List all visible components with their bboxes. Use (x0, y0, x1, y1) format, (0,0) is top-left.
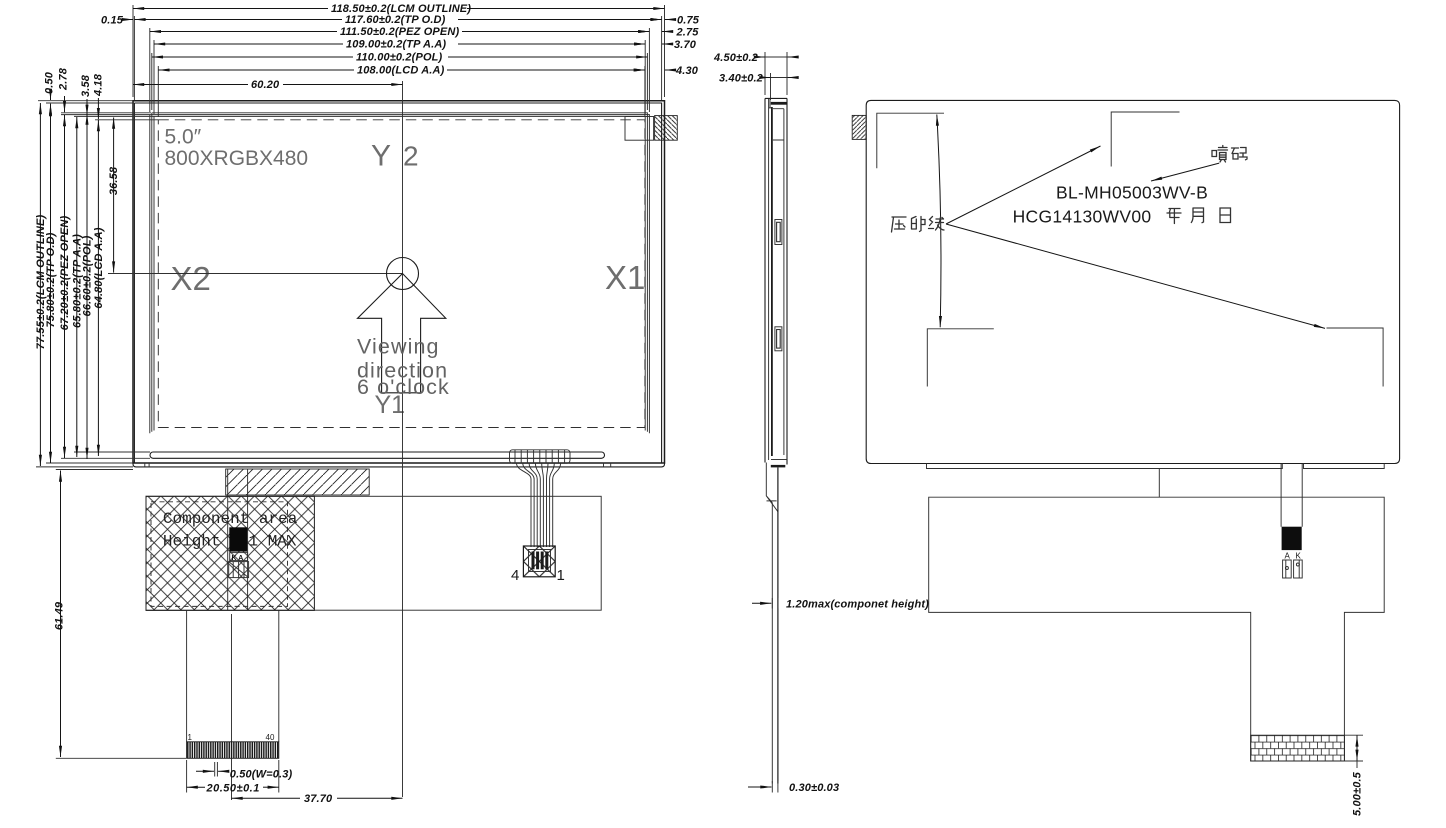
svg-text:4: 4 (511, 567, 519, 584)
svg-text:2.75: 2.75 (676, 27, 700, 39)
svg-text:HCG14130WV00: HCG14130WV00 (1013, 207, 1152, 227)
svg-text:2: 2 (403, 141, 419, 172)
svg-text:36.58: 36.58 (108, 166, 120, 195)
svg-text:4.18: 4.18 (93, 73, 105, 97)
svg-text:2.78: 2.78 (58, 67, 70, 91)
svg-text:61.49: 61.49 (54, 601, 66, 630)
svg-text:800XRGBX480: 800XRGBX480 (165, 147, 309, 170)
svg-text:5.0″: 5.0″ (165, 126, 202, 149)
svg-text:0.50: 0.50 (44, 71, 56, 94)
svg-text:X2: X2 (171, 260, 211, 297)
svg-text:X1: X1 (605, 259, 645, 296)
svg-text:1.20max(componet height): 1.20max(componet height) (786, 599, 929, 611)
svg-text:K: K (1296, 552, 1302, 561)
svg-text:BL-MH05003WV-B: BL-MH05003WV-B (1056, 183, 1208, 203)
svg-text:0.75: 0.75 (677, 15, 700, 27)
svg-text:66.60±0.2(POL): 66.60±0.2(POL) (82, 235, 94, 316)
svg-text:A: A (1285, 552, 1291, 561)
svg-text:3.58: 3.58 (80, 74, 92, 97)
svg-text:Height: Height (163, 533, 221, 551)
svg-text:37.70: 37.70 (304, 793, 333, 805)
svg-text:75.80±0.2(TP O.D): 75.80±0.2(TP O.D) (45, 232, 57, 327)
svg-text:20.50±0.1: 20.50±0.1 (206, 782, 260, 794)
svg-text:110.00±0.2(POL): 110.00±0.2(POL) (356, 52, 443, 64)
svg-text:4.30: 4.30 (675, 65, 699, 77)
svg-text:Viewing: Viewing (357, 335, 440, 359)
svg-text:1: 1 (188, 733, 193, 742)
svg-text:60.20: 60.20 (251, 79, 280, 91)
svg-text:40: 40 (266, 733, 275, 742)
svg-text:Y: Y (371, 140, 391, 173)
svg-text:1 MAX: 1 MAX (249, 533, 297, 551)
svg-text:Component area: Component area (163, 510, 298, 528)
svg-text:K A: K A (232, 555, 244, 562)
svg-text:0.30±0.03: 0.30±0.03 (789, 782, 839, 794)
svg-text:0.15: 0.15 (101, 15, 124, 27)
svg-text:64.80(LCD A.A): 64.80(LCD A.A) (93, 227, 105, 308)
svg-text:111.50±0.2(PEZ OPEN): 111.50±0.2(PEZ OPEN) (340, 26, 459, 38)
svg-text:3.40±0.2: 3.40±0.2 (719, 73, 763, 85)
svg-text:4.50±0.2: 4.50±0.2 (713, 52, 758, 64)
svg-text:109.00±0.2(TP A.A): 109.00±0.2(TP A.A) (346, 39, 446, 51)
svg-text:5.00±0.5: 5.00±0.5 (1352, 771, 1364, 816)
svg-text:6 o'clock: 6 o'clock (357, 375, 450, 399)
svg-text:3.70: 3.70 (674, 39, 697, 51)
svg-text:108.00(LCD A.A): 108.00(LCD A.A) (357, 65, 445, 77)
svg-text:117.60±0.2(TP O.D): 117.60±0.2(TP O.D) (345, 14, 446, 26)
svg-text:0.50(W=0.3): 0.50(W=0.3) (230, 769, 293, 781)
svg-text:1: 1 (557, 567, 565, 584)
svg-text:67.20±0.2(PEZ OPEN): 67.20±0.2(PEZ OPEN) (59, 215, 71, 330)
